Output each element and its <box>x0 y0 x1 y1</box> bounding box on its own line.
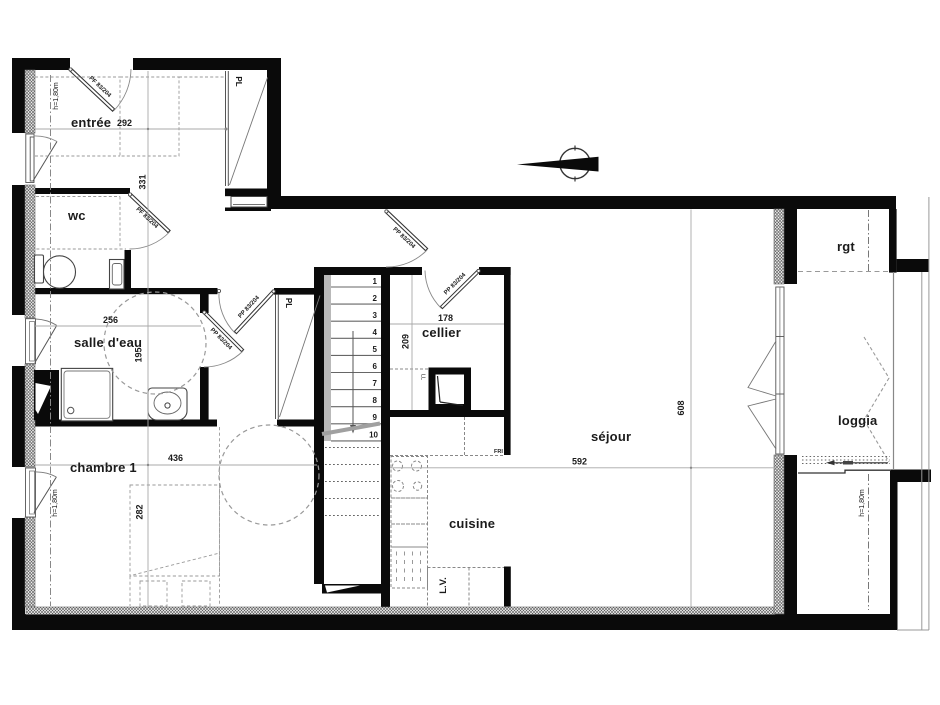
svg-text:2: 2 <box>373 294 378 303</box>
svg-text:195: 195 <box>134 347 144 362</box>
svg-text:5: 5 <box>373 345 378 354</box>
svg-text:FRI: FRI <box>494 449 503 455</box>
svg-text:séjour: séjour <box>591 429 631 444</box>
svg-text:cuisine: cuisine <box>449 516 495 531</box>
svg-text:9: 9 <box>373 413 378 422</box>
svg-text:L.V.: L.V. <box>438 577 449 594</box>
svg-text:3: 3 <box>373 311 378 320</box>
svg-text:256: 256 <box>103 315 118 325</box>
svg-text:chambre 1: chambre 1 <box>70 460 137 475</box>
svg-text:PL: PL <box>234 76 243 86</box>
svg-text:salle d'eau: salle d'eau <box>74 335 142 350</box>
svg-text:LL: LL <box>420 374 426 380</box>
svg-text:608: 608 <box>676 400 686 415</box>
svg-text:8: 8 <box>373 396 378 405</box>
svg-text:282: 282 <box>135 504 145 519</box>
svg-text:331: 331 <box>138 174 148 189</box>
svg-text:h=1,80m: h=1,80m <box>859 489 866 517</box>
svg-text:4: 4 <box>373 328 378 337</box>
svg-text:h=1,80m: h=1,80m <box>53 82 60 110</box>
svg-text:loggia: loggia <box>838 413 878 428</box>
svg-text:10: 10 <box>369 431 378 440</box>
svg-text:h=1,80m: h=1,80m <box>52 489 59 517</box>
svg-text:592: 592 <box>572 457 587 467</box>
svg-text:cellier: cellier <box>422 325 461 340</box>
svg-text:entrée: entrée <box>71 115 111 130</box>
svg-text:wc: wc <box>67 208 86 223</box>
svg-text:436: 436 <box>168 453 183 463</box>
svg-text:6: 6 <box>373 362 378 371</box>
svg-text:292: 292 <box>117 118 132 128</box>
svg-text:PL: PL <box>284 298 293 308</box>
svg-text:7: 7 <box>373 379 378 388</box>
svg-text:rgt: rgt <box>837 239 855 254</box>
svg-text:1: 1 <box>373 277 378 286</box>
svg-text:178: 178 <box>438 313 453 323</box>
svg-text:209: 209 <box>401 334 411 349</box>
